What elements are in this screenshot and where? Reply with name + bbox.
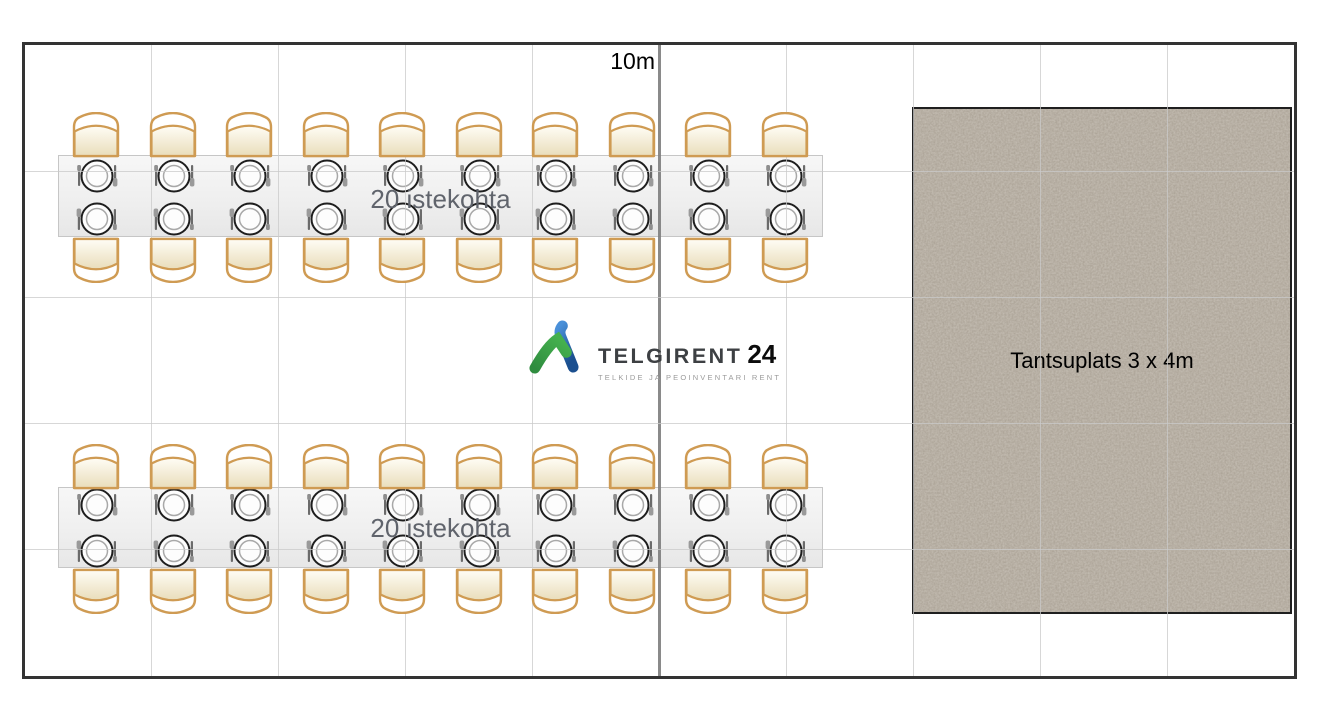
chair	[455, 444, 503, 490]
chair	[302, 444, 350, 490]
chair	[149, 112, 197, 158]
logo-brand-text: TELGIRENT	[598, 344, 742, 369]
chair	[225, 237, 273, 283]
chair	[455, 568, 503, 614]
chair	[378, 237, 426, 283]
brand-logo: TELGIRENT 24 TELKIDE JA PEOINVENTARI REN…	[528, 318, 781, 382]
chair	[302, 237, 350, 283]
chair	[608, 112, 656, 158]
chair	[225, 112, 273, 158]
tent-floor-plan: Tantsuplats 3 x 4m	[22, 42, 1297, 679]
chair	[761, 444, 809, 490]
logo-brand-number: 24	[747, 339, 776, 370]
chair	[531, 444, 579, 490]
chair	[72, 112, 120, 158]
chair	[302, 568, 350, 614]
logo-text-block: TELGIRENT 24 TELKIDE JA PEOINVENTARI REN…	[598, 339, 781, 382]
chair	[684, 112, 732, 158]
chair	[149, 568, 197, 614]
chair	[761, 568, 809, 614]
logo-tagline: TELKIDE JA PEOINVENTARI RENT	[598, 373, 781, 382]
chair	[531, 112, 579, 158]
chair	[378, 444, 426, 490]
table-1-seat-count-label: 20 istekohta	[58, 184, 823, 214]
chair	[302, 112, 350, 158]
chair	[761, 112, 809, 158]
chair	[455, 237, 503, 283]
chair	[378, 568, 426, 614]
floor-plan-canvas: Tantsuplats 3 x 4m	[0, 0, 1319, 708]
chair	[531, 237, 579, 283]
chair	[608, 444, 656, 490]
chair	[684, 237, 732, 283]
chair	[531, 568, 579, 614]
chair	[608, 568, 656, 614]
chair	[72, 444, 120, 490]
telgirent-tent-icon	[528, 318, 585, 375]
chair	[225, 444, 273, 490]
chair	[608, 237, 656, 283]
chair	[684, 444, 732, 490]
chair	[225, 568, 273, 614]
logo-name: TELGIRENT 24	[598, 339, 781, 370]
chair	[378, 112, 426, 158]
chair	[149, 237, 197, 283]
chair	[684, 568, 732, 614]
chair	[72, 568, 120, 614]
width-dimension-label: 10m	[505, 48, 655, 75]
chair	[149, 444, 197, 490]
chair	[761, 237, 809, 283]
table-2-seat-count-label: 20 istekohta	[58, 513, 823, 543]
chair	[455, 112, 503, 158]
chair	[72, 237, 120, 283]
